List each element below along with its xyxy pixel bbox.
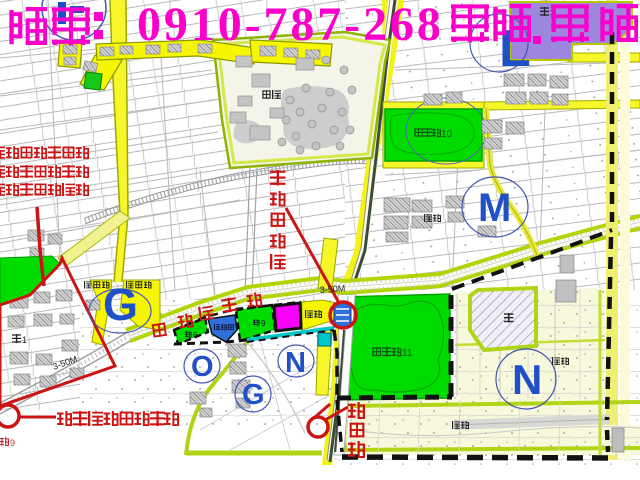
svg-text:M: M bbox=[478, 186, 511, 230]
svg-text:3-50M: 3-50M bbox=[319, 283, 345, 295]
svg-text:G: G bbox=[242, 379, 265, 411]
svg-text:9: 9 bbox=[10, 438, 15, 448]
svg-text:N: N bbox=[285, 347, 306, 379]
svg-text:1: 1 bbox=[22, 335, 27, 345]
svg-text:0910-787-268: 0910-787-268 bbox=[137, 0, 444, 51]
svg-text:6: 6 bbox=[193, 331, 198, 340]
svg-text:10: 10 bbox=[441, 129, 453, 140]
svg-text:G: G bbox=[103, 279, 138, 330]
svg-text:O: O bbox=[191, 351, 214, 383]
svg-text:11: 11 bbox=[402, 348, 413, 359]
svg-text:N: N bbox=[512, 356, 542, 403]
svg-text:9: 9 bbox=[261, 319, 266, 328]
